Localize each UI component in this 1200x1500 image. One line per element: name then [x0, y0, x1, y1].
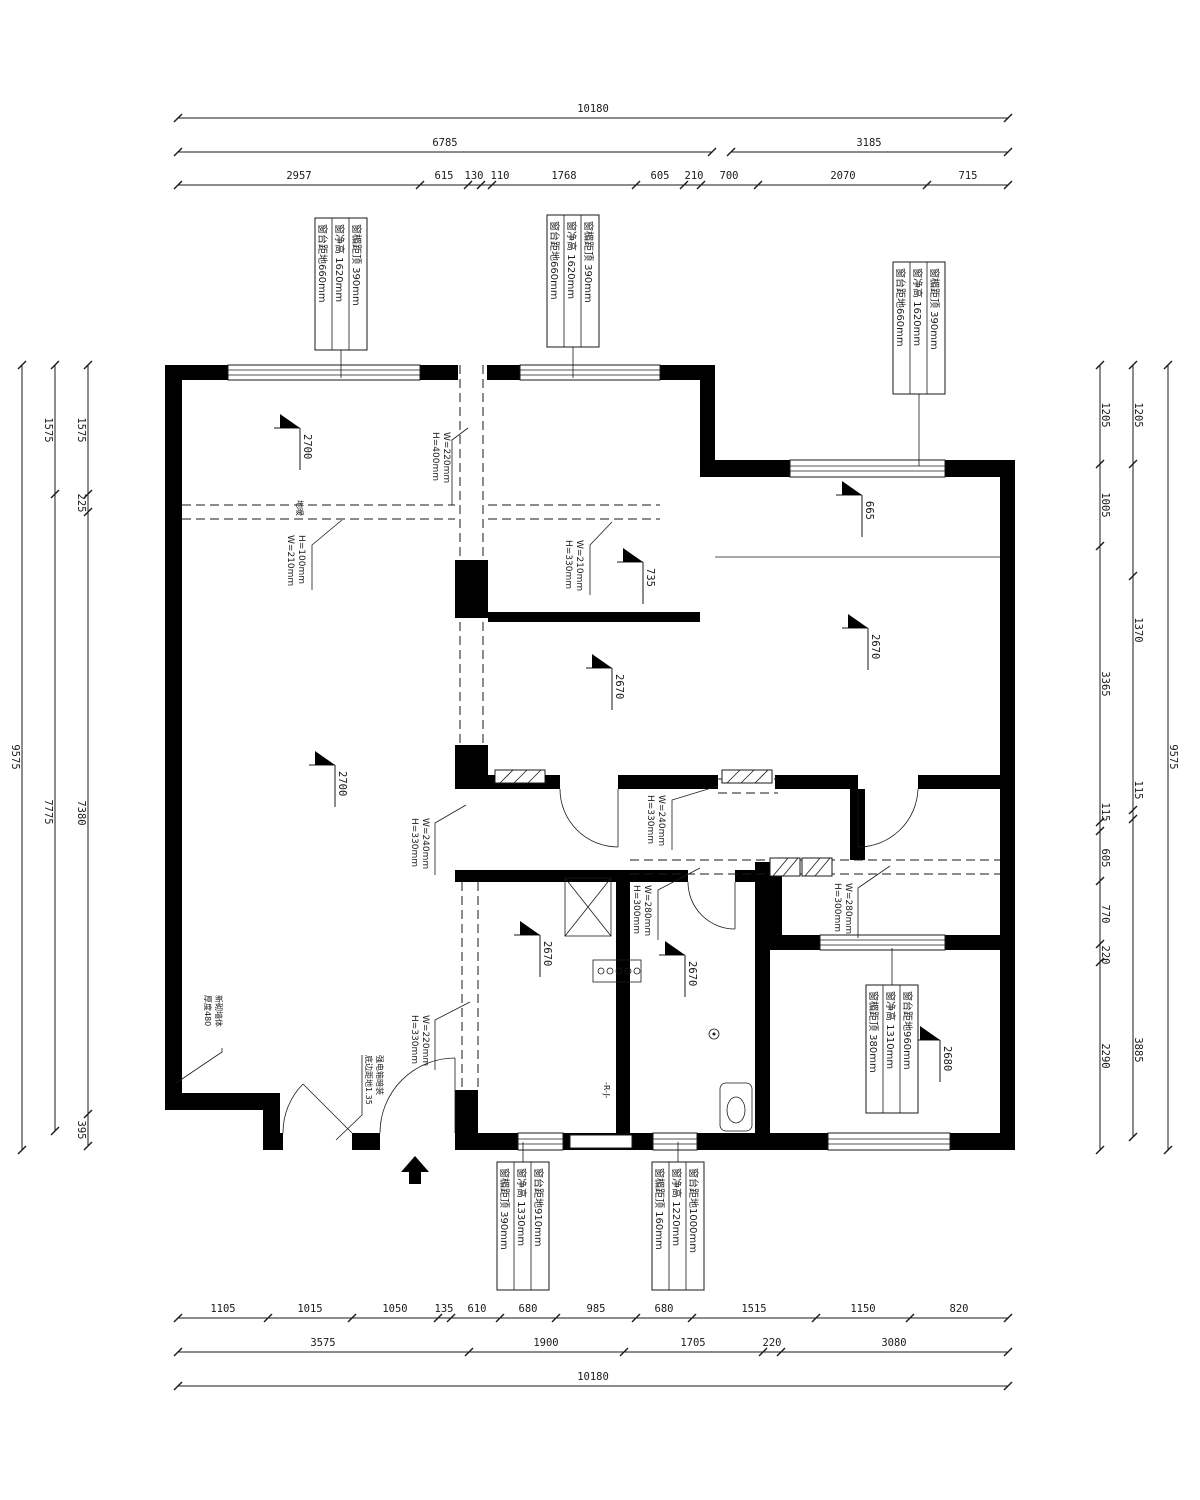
dim-label: 985	[587, 1303, 606, 1315]
beam-label: W=210mmH=330mm	[563, 522, 612, 595]
floor-heating-label: 地暖	[295, 500, 305, 516]
toilet-icon	[720, 1083, 752, 1131]
note-line: 底边距地1.35	[364, 1055, 374, 1105]
dim-label: 1575	[42, 417, 54, 442]
level-flag-icon: 2670	[514, 921, 553, 977]
level-value: 2700	[301, 434, 313, 459]
dim-label: 1370	[1132, 617, 1144, 642]
dim-label: 1015	[297, 1303, 322, 1315]
spec-line: 窗台距地910mm	[532, 1168, 545, 1247]
dim-label: 210	[685, 170, 704, 182]
note-line: 新砌墙体	[214, 995, 224, 1027]
dim-label: 1575	[75, 417, 87, 442]
beam-text: H=330mm	[563, 540, 573, 589]
dim-label: 2070	[830, 170, 855, 182]
beam-text: W=210mm	[285, 535, 295, 586]
dim-label: 135	[435, 1303, 454, 1315]
level-value: 2670	[869, 634, 881, 659]
dim-label: 3575	[310, 1337, 335, 1349]
duct-shaft-icon	[495, 770, 545, 783]
level-value: 2670	[613, 674, 625, 699]
beam-text: H=300mm	[832, 883, 842, 932]
window-symbols	[228, 365, 950, 1150]
spec-line: 窗净高 1310mm	[884, 991, 897, 1069]
level-value: 2670	[541, 941, 553, 966]
dim-label: 1205	[1099, 402, 1111, 427]
spec-line: 窗楣距顶 160mm	[653, 1168, 666, 1250]
dim-label: 6785	[432, 137, 457, 149]
dim-label: 2290	[1099, 1043, 1111, 1068]
level-value: 665	[863, 501, 875, 520]
window-spec-block: 窗台距地960mm 窗净高 1310mm 窗楣距顶 380mm	[866, 948, 918, 1113]
beam-text: W=280mm	[843, 883, 853, 934]
dim-label: 7775	[42, 799, 54, 824]
note-line: 强电箱暗装	[375, 1055, 385, 1095]
window-symbol	[520, 365, 660, 380]
door-swing	[560, 789, 618, 847]
dim-label: 225	[75, 494, 87, 513]
dim-label: 2957	[286, 170, 311, 182]
dim-label: 9575	[1167, 744, 1179, 769]
dim-label: 9575	[9, 744, 21, 769]
dim-label: 3885	[1132, 1037, 1144, 1062]
level-flag-icon: 2670	[659, 941, 698, 997]
level-flag-icon: 2680	[914, 1026, 953, 1082]
door-swing	[688, 882, 735, 929]
plan-notes: 地暖 新砌墙体 厚度480 强电箱暗装 底边距地1.35 -R-J-	[176, 500, 611, 1140]
dimensions-left: 1575 225 7380 395 1575 7775 9575	[9, 361, 92, 1154]
level-value: 2700	[336, 771, 348, 796]
spec-line: 窗楣距顶 390mm	[582, 221, 595, 303]
dim-label: 1050	[382, 1303, 407, 1315]
dim-label: 115	[1132, 781, 1144, 800]
window-spec-block: 窗台距地1000mm 窗净高 1220mm 窗楣距顶 160mm	[652, 1142, 704, 1290]
dim-label: 395	[75, 1121, 87, 1140]
level-flag-icon: 2670	[842, 614, 881, 670]
spec-line: 窗楣距顶 380mm	[867, 991, 880, 1073]
dim-label: 10180	[577, 1371, 609, 1383]
dim-label: 1150	[850, 1303, 875, 1315]
dim-label: 3080	[881, 1337, 906, 1349]
spec-line: 窗台距地1000mm	[687, 1168, 700, 1253]
window-spec-block: 窗楣距顶 390mm 窗净高 1620mm 窗台距地660mm	[893, 262, 945, 466]
dim-label: 3185	[856, 137, 881, 149]
entry-arrow-icon	[401, 1156, 429, 1184]
level-flag-icon: 2670	[586, 654, 625, 710]
dim-label: 680	[519, 1303, 538, 1315]
dim-label: 1205	[1132, 402, 1144, 427]
floor-plan-canvas: 2700 735 2670 665 2670 2700 2670 2670 26…	[0, 0, 1200, 1500]
dimensions-bottom: 1105 1015 1050 135 610 680 985 680 1515 …	[174, 1303, 1012, 1390]
level-flag-icon: 735	[617, 548, 656, 604]
duct-shaft-icon	[802, 858, 832, 876]
dim-label: 680	[655, 1303, 674, 1315]
dim-label: 130	[465, 170, 484, 182]
beam-label: W=240mmH=330mm	[409, 805, 466, 875]
duct-shaft-icon	[770, 858, 800, 876]
level-flag-icon: 2700	[274, 414, 313, 470]
spec-line: 窗净高 1220mm	[670, 1168, 683, 1246]
window-symbol	[828, 1133, 950, 1150]
wall-note: 新砌墙体 厚度480	[176, 995, 224, 1083]
duct-shaft-icon	[722, 770, 772, 783]
dim-label: 615	[435, 170, 454, 182]
level-value: 2670	[686, 961, 698, 986]
window-symbol	[820, 935, 945, 950]
window-symbol	[228, 365, 420, 380]
dim-label: 115	[1099, 803, 1111, 822]
dimensions-top: 10180 6785 3185 2957 615 130 110 1768 60…	[174, 103, 1012, 189]
dim-label: 7380	[75, 800, 87, 825]
dim-label: 1105	[210, 1303, 235, 1315]
beam-text: H=330mm	[645, 795, 655, 844]
beam-text: H=330mm	[409, 1015, 419, 1064]
spec-line: 窗楣距顶 390mm	[498, 1168, 511, 1250]
beam-text: W=240mm	[656, 795, 666, 846]
dim-label: 1005	[1099, 492, 1111, 517]
dim-label: 3365	[1099, 671, 1111, 696]
door-swing	[858, 789, 918, 847]
level-value: 735	[644, 568, 656, 587]
window-symbol	[518, 1133, 563, 1150]
level-flag-icon: 665	[836, 481, 875, 537]
door-swing	[283, 1084, 352, 1133]
level-flag-icon: 2700	[309, 751, 348, 807]
beam-label: H=100mmW=210mm	[285, 520, 342, 590]
floor-plan-drawing: 2700 735 2670 665 2670 2700 2670 2670 26…	[0, 0, 1200, 1500]
floor-drain-icon	[709, 1029, 719, 1039]
beam-size-labels: W=220mmH=400mm H=100mmW=210mm W=210mmH=3…	[285, 428, 890, 1070]
beam-label: W=240mmH=330mm	[645, 786, 718, 850]
threshold-label-box	[570, 1135, 632, 1148]
beam-label: W=280mmH=300mm	[832, 866, 890, 938]
beam-text: H=100mm	[296, 535, 306, 584]
dim-label: 1705	[680, 1337, 705, 1349]
window-spec-block: 窗楣距顶 390mm 窗净高 1620mm 窗台距地660mm	[315, 218, 367, 378]
beam-text: W=220mm	[441, 432, 451, 483]
dim-label: 1768	[551, 170, 576, 182]
beam-text: W=210mm	[574, 540, 584, 591]
spec-line: 窗净高 1330mm	[515, 1168, 528, 1246]
spec-line: 窗台距地660mm	[548, 221, 561, 300]
electrical-note: 强电箱暗装 底边距地1.35	[336, 1055, 385, 1140]
dim-label: 1900	[533, 1337, 558, 1349]
dim-label: 715	[959, 170, 978, 182]
note-line: 厚度480	[203, 995, 213, 1026]
dim-label: 605	[651, 170, 670, 182]
spec-line: 窗台距地960mm	[901, 991, 914, 1070]
dim-label: 605	[1099, 849, 1111, 868]
dim-label: 110	[491, 170, 510, 182]
dim-label: 1515	[741, 1303, 766, 1315]
beam-text: H=300mm	[631, 885, 641, 934]
spec-line: 窗楣距顶 390mm	[350, 224, 363, 306]
dim-label: 700	[720, 170, 739, 182]
spec-line: 窗净高 1620mm	[565, 221, 578, 299]
dim-label: 770	[1099, 905, 1111, 924]
beam-text: H=330mm	[409, 818, 419, 867]
level-value: 2680	[941, 1046, 953, 1071]
door-swing	[380, 1058, 455, 1133]
dim-label: 820	[950, 1303, 969, 1315]
beam-text: H=400mm	[430, 432, 440, 481]
beam-label: W=220mmH=400mm	[430, 428, 468, 505]
spec-line: 窗台距地660mm	[316, 224, 329, 303]
riser-tag: -R-J-	[602, 1082, 611, 1099]
window-spec-block: 窗楣距顶 390mm 窗净高 1620mm 窗台距地660mm	[547, 215, 599, 378]
window-symbol	[653, 1133, 697, 1150]
dim-label: 220	[1099, 946, 1111, 965]
dim-label: 610	[468, 1303, 487, 1315]
door-swings	[283, 789, 918, 1184]
beam-text: W=240mm	[420, 818, 430, 869]
spec-line: 窗净高 1620mm	[333, 224, 346, 302]
spec-line: 窗净高 1620mm	[911, 268, 924, 346]
beam-text: W=280mm	[642, 885, 652, 936]
window-spec-block: 窗台距地910mm 窗净高 1330mm 窗楣距顶 390mm	[497, 1142, 549, 1290]
spec-line: 窗台距地660mm	[894, 268, 907, 347]
dim-label: 220	[763, 1337, 782, 1349]
spec-line: 窗楣距顶 390mm	[928, 268, 941, 350]
kitchen-sink-icon	[565, 878, 611, 936]
beam-text: W=220mm	[420, 1015, 430, 1066]
dim-label: 10180	[577, 103, 609, 115]
dimensions-right: 1205 1005 3365 115 605 770 220 2290 1205…	[1096, 361, 1179, 1154]
window-symbol	[790, 460, 945, 477]
